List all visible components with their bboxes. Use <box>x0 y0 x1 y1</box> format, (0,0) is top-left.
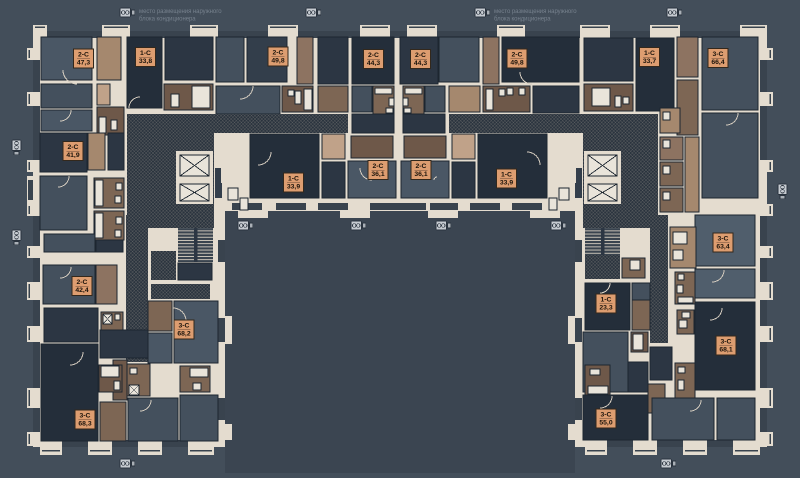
svg-text:33,9: 33,9 <box>500 179 513 186</box>
svg-text:место размещения наружного: место размещения наружного <box>139 9 222 15</box>
svg-text:1-С: 1-С <box>140 50 151 57</box>
svg-text:36,1: 36,1 <box>414 171 427 178</box>
svg-text:3-С: 3-С <box>713 51 724 58</box>
svg-text:2-С: 2-С <box>512 52 523 59</box>
svg-text:2-С: 2-С <box>68 144 79 151</box>
svg-text:место размещения наружного: место размещения наружного <box>494 9 577 15</box>
svg-text:1-С: 1-С <box>644 50 655 57</box>
svg-text:68,3: 68,3 <box>78 420 91 427</box>
svg-text:68,2: 68,2 <box>177 330 190 337</box>
svg-text:3-С: 3-С <box>179 323 190 330</box>
svg-text:66,4: 66,4 <box>711 59 724 66</box>
svg-text:49,8: 49,8 <box>510 59 523 66</box>
svg-text:2-С: 2-С <box>416 163 427 170</box>
svg-text:блока кондиционера: блока кондиционера <box>139 17 196 23</box>
svg-text:47,3: 47,3 <box>77 59 90 66</box>
svg-text:41,9: 41,9 <box>66 152 79 159</box>
svg-text:2-С: 2-С <box>373 163 384 170</box>
svg-text:2-С: 2-С <box>78 52 89 59</box>
svg-text:2-С: 2-С <box>273 50 284 57</box>
svg-text:1-С: 1-С <box>601 297 612 304</box>
svg-text:33,9: 33,9 <box>287 183 300 190</box>
svg-text:3-С: 3-С <box>721 339 732 346</box>
svg-text:3-С: 3-С <box>80 413 91 420</box>
svg-text:36,1: 36,1 <box>371 171 384 178</box>
svg-text:44,3: 44,3 <box>367 60 380 67</box>
svg-text:1-С: 1-С <box>501 172 512 179</box>
svg-text:55,0: 55,0 <box>599 419 612 426</box>
svg-text:44,3: 44,3 <box>414 60 427 67</box>
svg-text:2-С: 2-С <box>77 279 88 286</box>
svg-text:42,4: 42,4 <box>75 287 88 294</box>
svg-text:3-С: 3-С <box>718 236 729 243</box>
svg-text:2-С: 2-С <box>415 52 426 59</box>
svg-text:3-С: 3-С <box>601 412 612 419</box>
svg-text:23,3: 23,3 <box>599 304 612 311</box>
svg-text:2-С: 2-С <box>368 52 379 59</box>
svg-text:33,7: 33,7 <box>643 58 656 65</box>
svg-text:63,4: 63,4 <box>716 243 729 250</box>
svg-text:блока кондиционера: блока кондиционера <box>494 17 551 23</box>
svg-text:49,8: 49,8 <box>271 57 284 64</box>
svg-text:33,8: 33,8 <box>139 58 152 65</box>
svg-text:1-С: 1-С <box>288 176 299 183</box>
svg-text:68,1: 68,1 <box>719 346 732 353</box>
